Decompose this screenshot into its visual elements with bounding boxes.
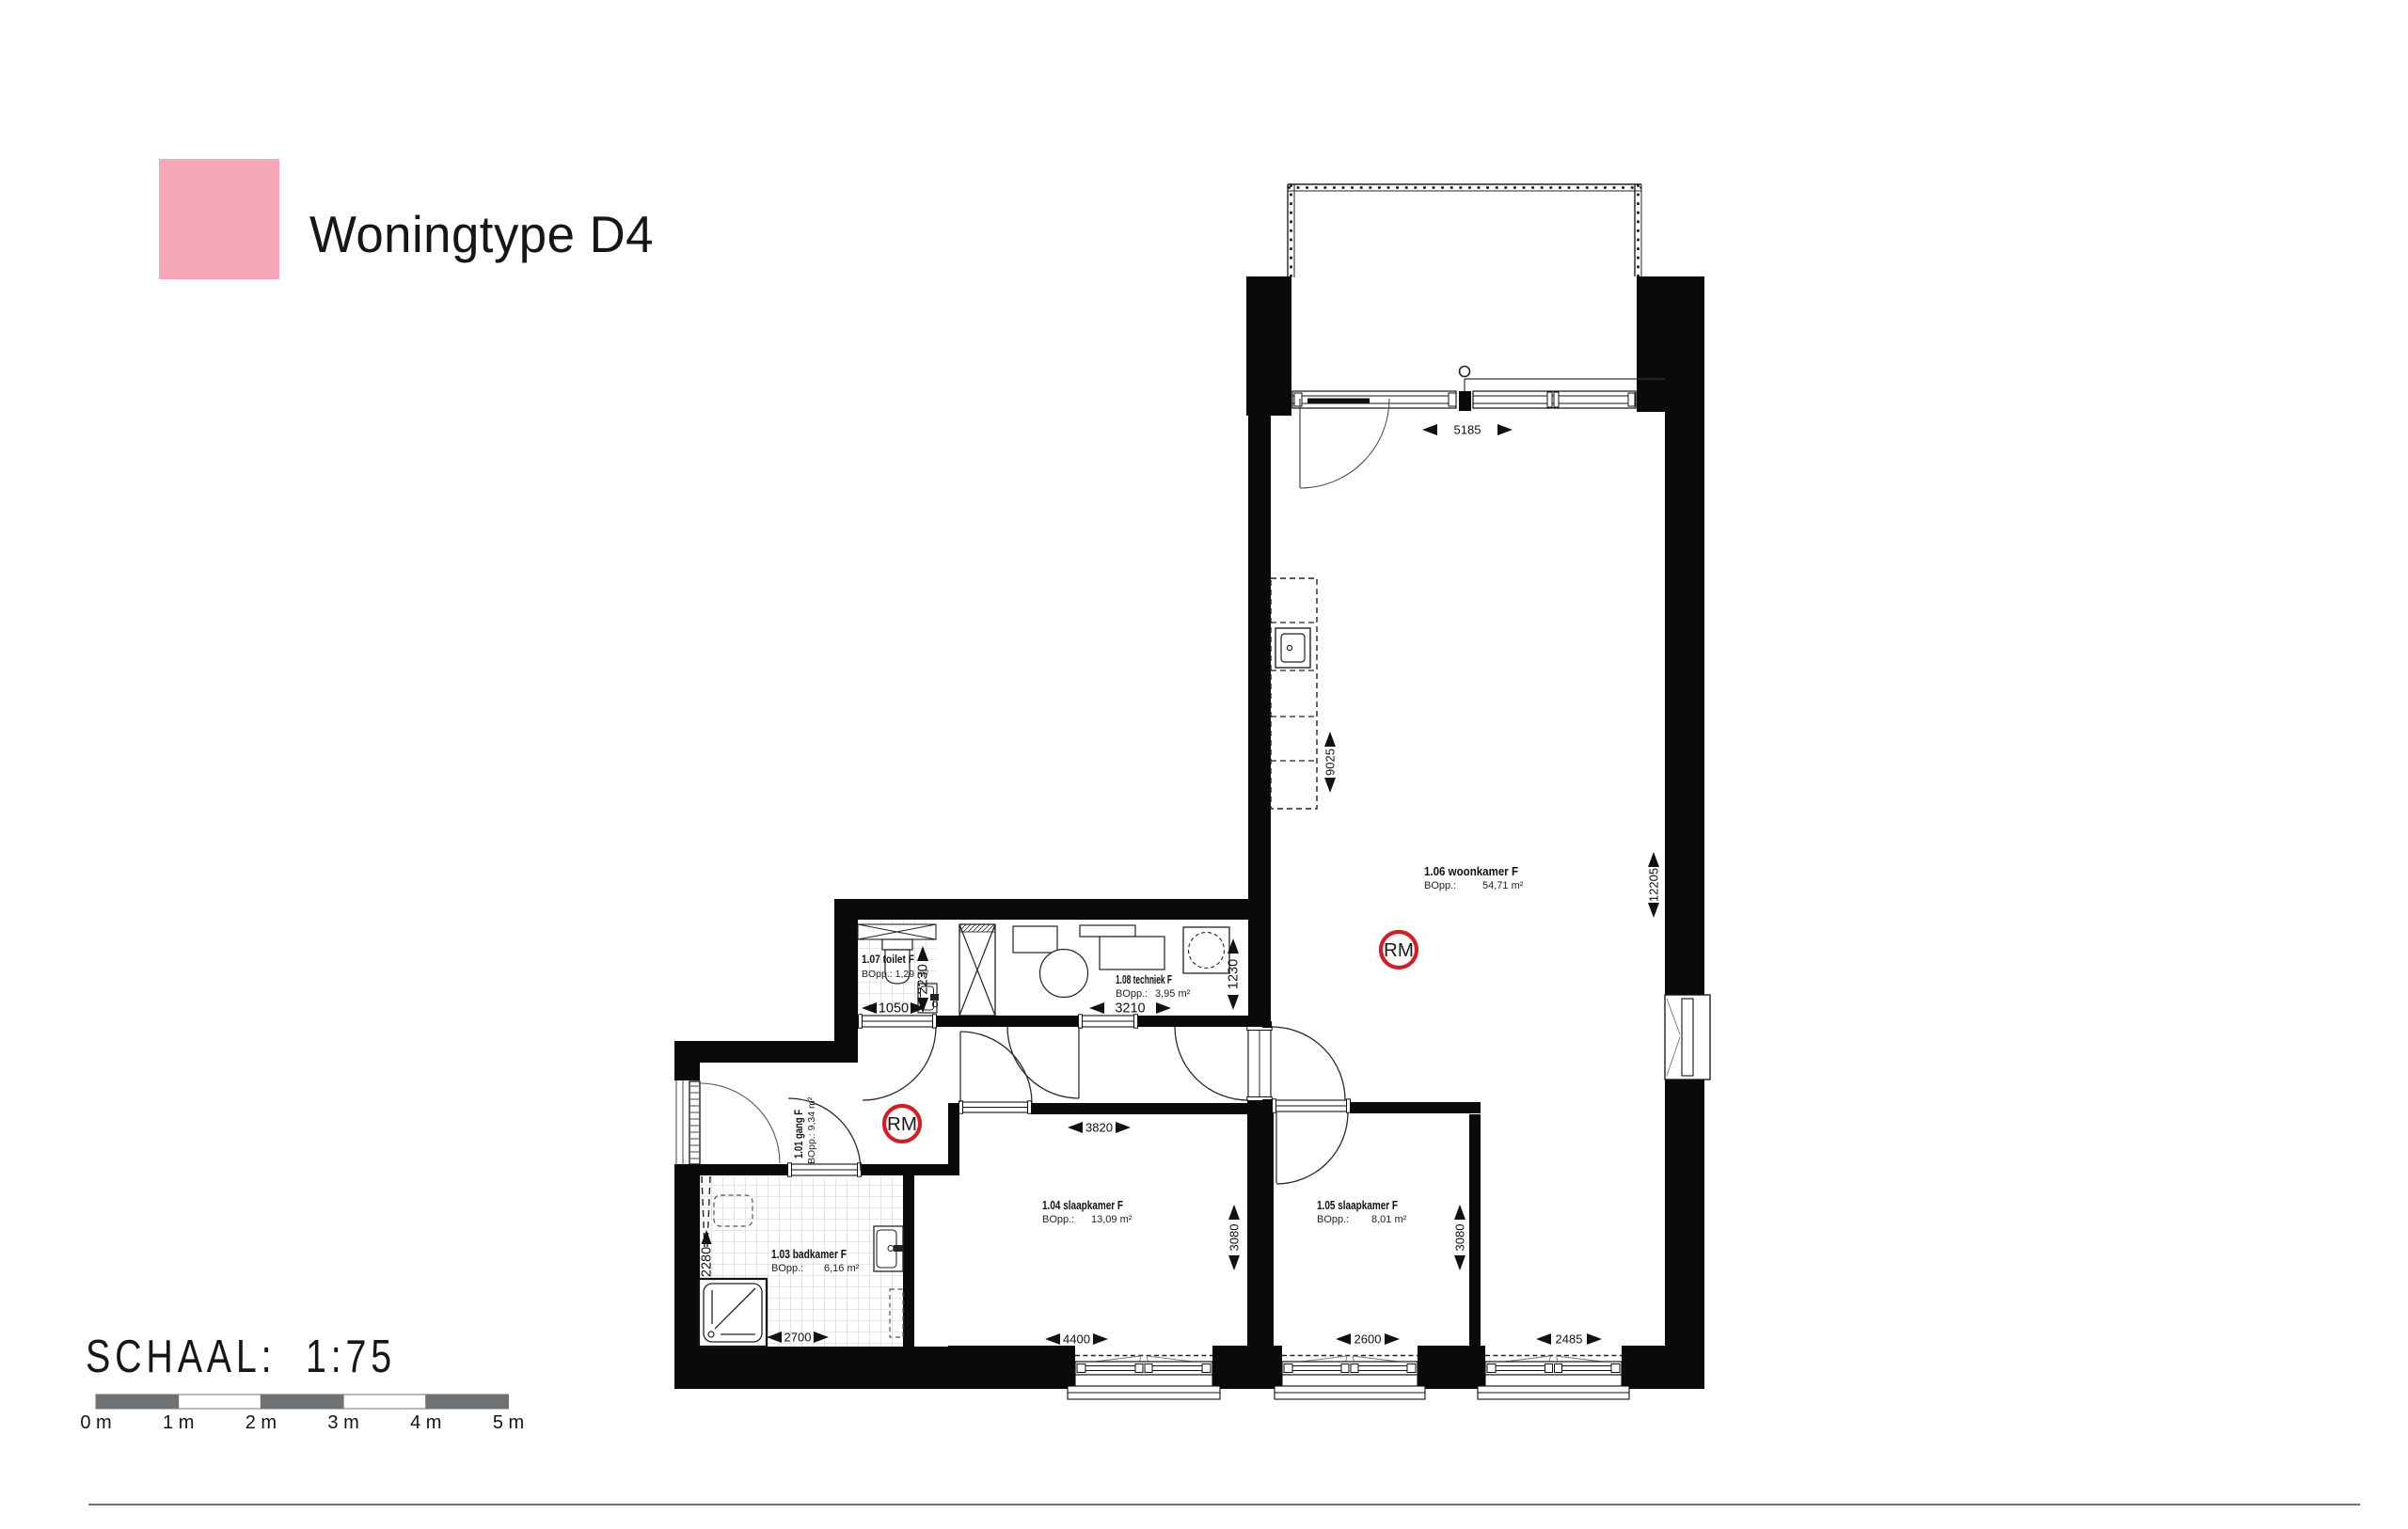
svg-text:3080: 3080 bbox=[1453, 1224, 1467, 1252]
svg-text:BOpp.:: BOpp.: bbox=[771, 1263, 803, 1274]
svg-text:1.08 techniek F: 1.08 techniek F bbox=[1116, 973, 1172, 986]
svg-text:1 m: 1 m bbox=[163, 1412, 194, 1433]
svg-text:2485: 2485 bbox=[1556, 1332, 1583, 1347]
svg-text:1.06 woonkamer F: 1.06 woonkamer F bbox=[1424, 865, 1518, 878]
svg-text:54,71 m²: 54,71 m² bbox=[1482, 880, 1524, 891]
svg-text:1.01 gang F: 1.01 gang F bbox=[792, 1110, 805, 1159]
svg-text:Woningtype D4: Woningtype D4 bbox=[309, 205, 654, 263]
svg-text:2 m: 2 m bbox=[246, 1412, 277, 1433]
svg-text:BOpp.:: BOpp.: bbox=[1042, 1214, 1074, 1225]
svg-text:1.07 toilet F: 1.07 toilet F bbox=[862, 953, 914, 966]
svg-text:RM: RM bbox=[1384, 939, 1414, 961]
svg-text:2280: 2280 bbox=[700, 1247, 715, 1277]
svg-text:BOpp.:: BOpp.: bbox=[1424, 880, 1456, 891]
svg-text:13,09 m²: 13,09 m² bbox=[1091, 1214, 1133, 1225]
svg-text:5185: 5185 bbox=[1454, 423, 1481, 437]
svg-text:8,01 m²: 8,01 m² bbox=[1371, 1214, 1407, 1225]
svg-text:6,16 m²: 6,16 m² bbox=[824, 1263, 860, 1274]
svg-text:BOpp.:: BOpp.: bbox=[1116, 988, 1148, 1000]
svg-text:2700: 2700 bbox=[784, 1331, 812, 1345]
svg-text:3,95 m²: 3,95 m² bbox=[1155, 988, 1191, 1000]
svg-text:1230: 1230 bbox=[1227, 959, 1242, 989]
svg-text:3 m: 3 m bbox=[327, 1412, 358, 1433]
svg-text:3210: 3210 bbox=[1115, 1001, 1145, 1017]
svg-text:RM: RM bbox=[887, 1113, 917, 1135]
svg-text:5 m: 5 m bbox=[493, 1412, 524, 1433]
svg-text:12205: 12205 bbox=[1647, 868, 1661, 902]
svg-text:BOpp.: 9,34 m²: BOpp.: 9,34 m² bbox=[806, 1096, 817, 1164]
svg-text:BOpp.: 1,29 m²: BOpp.: 1,29 m² bbox=[862, 969, 929, 980]
svg-text:0 m: 0 m bbox=[80, 1412, 111, 1433]
svg-text:BOpp.:: BOpp.: bbox=[1317, 1214, 1349, 1225]
svg-text:4 m: 4 m bbox=[410, 1412, 441, 1433]
svg-text:1.03 badkamer F: 1.03 badkamer F bbox=[771, 1248, 847, 1261]
svg-text:4400: 4400 bbox=[1063, 1332, 1090, 1347]
svg-text:1.04 slaapkamer F: 1.04 slaapkamer F bbox=[1042, 1199, 1123, 1212]
svg-text:9025: 9025 bbox=[1323, 749, 1338, 776]
svg-text:1050: 1050 bbox=[879, 1001, 909, 1017]
svg-text:3080: 3080 bbox=[1228, 1224, 1242, 1252]
svg-text:2600: 2600 bbox=[1354, 1332, 1382, 1347]
svg-text:SCHAAL: 1:75: SCHAAL: 1:75 bbox=[86, 1332, 396, 1382]
svg-text:1.05 slaapkamer F: 1.05 slaapkamer F bbox=[1317, 1199, 1398, 1212]
svg-text:3820: 3820 bbox=[1085, 1121, 1113, 1135]
